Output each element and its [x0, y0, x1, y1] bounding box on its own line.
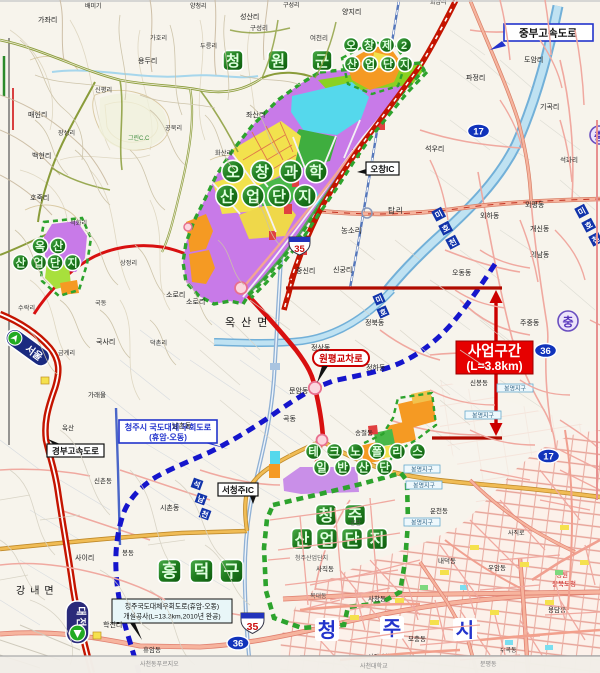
svg-text:청주산업단지: 청주산업단지 [295, 554, 328, 562]
svg-text:국사리: 국사리 [96, 337, 115, 346]
svg-text:공북리: 공북리 [165, 124, 182, 132]
svg-text:청: 청 [318, 619, 336, 642]
svg-text:정하동: 정하동 [366, 363, 386, 372]
svg-text:용두리: 용두리 [138, 56, 157, 65]
svg-text:신평리: 신평리 [95, 86, 112, 94]
svg-text:원평교차로: 원평교차로 [319, 353, 363, 365]
svg-text:원: 원 [271, 53, 285, 70]
svg-text:정북동: 정북동 [365, 318, 385, 327]
svg-text:남촌동: 남촌동 [172, 421, 192, 430]
svg-text:오: 오 [346, 39, 356, 52]
svg-text:매현리: 매현리 [28, 110, 47, 119]
svg-text:사업구간: 사업구간 [468, 343, 522, 360]
svg-text:청: 청 [319, 506, 334, 525]
svg-text:가좌리: 가좌리 [38, 15, 57, 24]
svg-text:산: 산 [53, 239, 63, 253]
svg-text:봉명지구: 봉명지구 [413, 482, 436, 490]
svg-text:충: 충 [562, 314, 573, 329]
svg-text:업: 업 [365, 58, 375, 71]
svg-text:36: 36 [233, 639, 244, 650]
svg-text:흥: 흥 [162, 561, 178, 581]
svg-text:백현리: 백현리 [32, 151, 51, 160]
svg-text:파정리: 파정리 [466, 73, 485, 82]
svg-text:산: 산 [358, 461, 369, 475]
svg-text:옥산: 옥산 [62, 423, 74, 432]
svg-text:산: 산 [15, 256, 25, 270]
svg-text:두릉리: 두릉리 [200, 42, 217, 50]
svg-text:석우리: 석우리 [425, 144, 444, 153]
svg-text:업: 업 [33, 257, 43, 270]
svg-text:학: 학 [309, 164, 323, 181]
svg-text:창: 창 [255, 164, 269, 181]
svg-text:경부고속도로: 경부고속도로 [52, 446, 99, 456]
svg-text:17: 17 [543, 452, 554, 463]
svg-text:청주국도대체우회도로(휴암-오동): 청주국도대체우회도로(휴암-오동) [125, 603, 219, 611]
svg-text:반: 반 [337, 461, 348, 475]
svg-text:2: 2 [401, 40, 407, 52]
svg-text:단: 단 [379, 461, 390, 475]
svg-text:중신리: 중신리 [296, 266, 315, 275]
svg-text:대: 대 [75, 606, 88, 615]
svg-text:창: 창 [364, 38, 374, 52]
svg-text:구성리: 구성리 [250, 23, 268, 32]
svg-text:외하동: 외하동 [480, 211, 500, 220]
svg-text:공단: 공단 [350, 519, 362, 527]
svg-text:단: 단 [272, 188, 286, 205]
svg-text:노: 노 [350, 446, 361, 459]
svg-text:석화리: 석화리 [70, 219, 87, 227]
svg-text:단: 단 [383, 57, 393, 71]
svg-text:곡동: 곡동 [283, 415, 296, 423]
svg-text:탑리: 탑리 [388, 206, 404, 215]
svg-text:35: 35 [247, 621, 259, 633]
svg-text:업: 업 [320, 531, 335, 549]
svg-text:일: 일 [316, 461, 327, 475]
svg-text:분평동: 분평동 [480, 660, 497, 668]
svg-text:(휴암-오동): (휴암-오동) [149, 432, 187, 442]
svg-text:수곡동: 수곡동 [500, 647, 517, 654]
svg-text:도암리: 도암리 [524, 55, 543, 64]
svg-text:운천동: 운천동 [430, 506, 448, 515]
svg-text:리: 리 [392, 445, 403, 459]
svg-text:신촌동: 신촌동 [94, 476, 112, 485]
svg-text:좌산리: 좌산리 [246, 110, 265, 119]
svg-text:폴: 폴 [372, 446, 383, 459]
svg-text:지: 지 [298, 188, 312, 205]
svg-text:정상동: 정상동 [311, 343, 331, 352]
svg-text:덕: 덕 [194, 562, 210, 581]
svg-text:모충동: 모충동 [408, 634, 426, 643]
svg-text:주중동: 주중동 [520, 319, 540, 327]
svg-text:상정리: 상정리 [120, 259, 137, 267]
svg-text:그린C.C: 그린C.C [128, 135, 150, 142]
svg-text:신봉동: 신봉동 [470, 378, 488, 387]
svg-text:내덕동: 내덕동 [438, 556, 456, 565]
svg-text:소로리: 소로리 [186, 297, 205, 306]
svg-text:봉명지구: 봉명지구 [504, 385, 527, 393]
svg-text:개신동: 개신동 [530, 224, 550, 233]
svg-text:옥: 옥 [35, 240, 45, 253]
svg-text:서청주IC: 서청주IC [222, 485, 254, 495]
svg-text:국동: 국동 [95, 300, 107, 307]
svg-text:청: 청 [226, 53, 240, 70]
svg-text:외평동: 외평동 [525, 200, 545, 209]
svg-text:산: 산 [220, 188, 234, 205]
svg-text:청주시 국도대체 우회도로: 청주시 국도대체 우회도로 [125, 422, 212, 432]
svg-text:사이리: 사이리 [75, 553, 94, 562]
svg-text:강내면: 강내면 [16, 585, 59, 597]
svg-text:지: 지 [400, 57, 410, 71]
svg-text:사천동푸르지오: 사천동푸르지오 [140, 660, 179, 668]
svg-text:가래울: 가래울 [88, 390, 106, 399]
svg-text:봉명지구: 봉명지구 [411, 519, 434, 527]
svg-text:스: 스 [412, 446, 423, 459]
svg-text:휴암동: 휴암동 [143, 646, 161, 654]
svg-text:소로리: 소로리 [166, 290, 185, 299]
svg-text:사직로: 사직로 [508, 529, 525, 537]
svg-text:신궁리: 신궁리 [333, 265, 352, 274]
svg-text:오창IC: 오창IC [370, 164, 394, 174]
svg-text:여천리: 여천리 [310, 33, 328, 42]
svg-text:단: 단 [50, 256, 60, 270]
svg-text:제: 제 [382, 38, 392, 52]
svg-text:기곡리: 기곡리 [540, 102, 559, 111]
svg-text:양청리: 양청리 [190, 2, 207, 10]
svg-text:크: 크 [329, 446, 340, 459]
svg-text:군: 군 [315, 53, 329, 70]
svg-text:호죽리: 호죽리 [30, 193, 49, 202]
svg-text:산: 산 [347, 57, 357, 71]
svg-text:오동동: 오동동 [452, 269, 472, 277]
svg-text:배미기: 배미기 [85, 2, 102, 10]
svg-text:성산리: 성산리 [240, 12, 259, 21]
svg-text:문암동: 문암동 [289, 387, 309, 395]
svg-text:사직동: 사직동 [316, 564, 334, 573]
svg-text:화산리: 화산리 [215, 149, 232, 157]
svg-text:구: 구 [224, 562, 240, 581]
svg-text:봉명지구: 봉명지구 [411, 466, 434, 474]
svg-text:학천리: 학천리 [103, 620, 122, 629]
svg-text:오: 오 [226, 164, 240, 181]
svg-text:금계리: 금계리 [58, 349, 75, 357]
svg-text:36: 36 [540, 346, 551, 357]
svg-text:시: 시 [456, 619, 474, 642]
svg-text:시촌동: 시촌동 [160, 503, 180, 512]
svg-text:지: 지 [370, 531, 385, 549]
svg-text:수락리: 수락리 [18, 304, 35, 312]
svg-text:과: 과 [284, 164, 298, 181]
svg-text:봉명지구: 봉명지구 [472, 412, 495, 420]
svg-text:봉동: 봉동 [122, 549, 134, 557]
svg-text:35: 35 [294, 244, 305, 255]
svg-text:(L=3.8km): (L=3.8km) [466, 359, 522, 373]
svg-text:장성리: 장성리 [58, 129, 75, 137]
svg-text:중부고속도로: 중부고속도로 [519, 28, 577, 40]
svg-text:테: 테 [308, 445, 319, 459]
svg-text:지: 지 [67, 256, 77, 270]
svg-text:주: 주 [383, 618, 401, 640]
svg-text:17: 17 [473, 127, 484, 138]
svg-text:덕촌리: 덕촌리 [150, 339, 167, 347]
svg-text:양지리: 양지리 [342, 7, 361, 16]
svg-text:송절동: 송절동 [355, 429, 373, 437]
svg-text:사천대학교: 사천대학교 [360, 662, 388, 670]
svg-text:사창동: 사창동 [368, 594, 386, 603]
svg-text:가호리: 가호리 [150, 34, 167, 42]
svg-text:농소리: 농소리 [341, 226, 362, 235]
svg-text:구성리: 구성리 [283, 1, 300, 9]
svg-text:복대동: 복대동 [310, 592, 327, 600]
